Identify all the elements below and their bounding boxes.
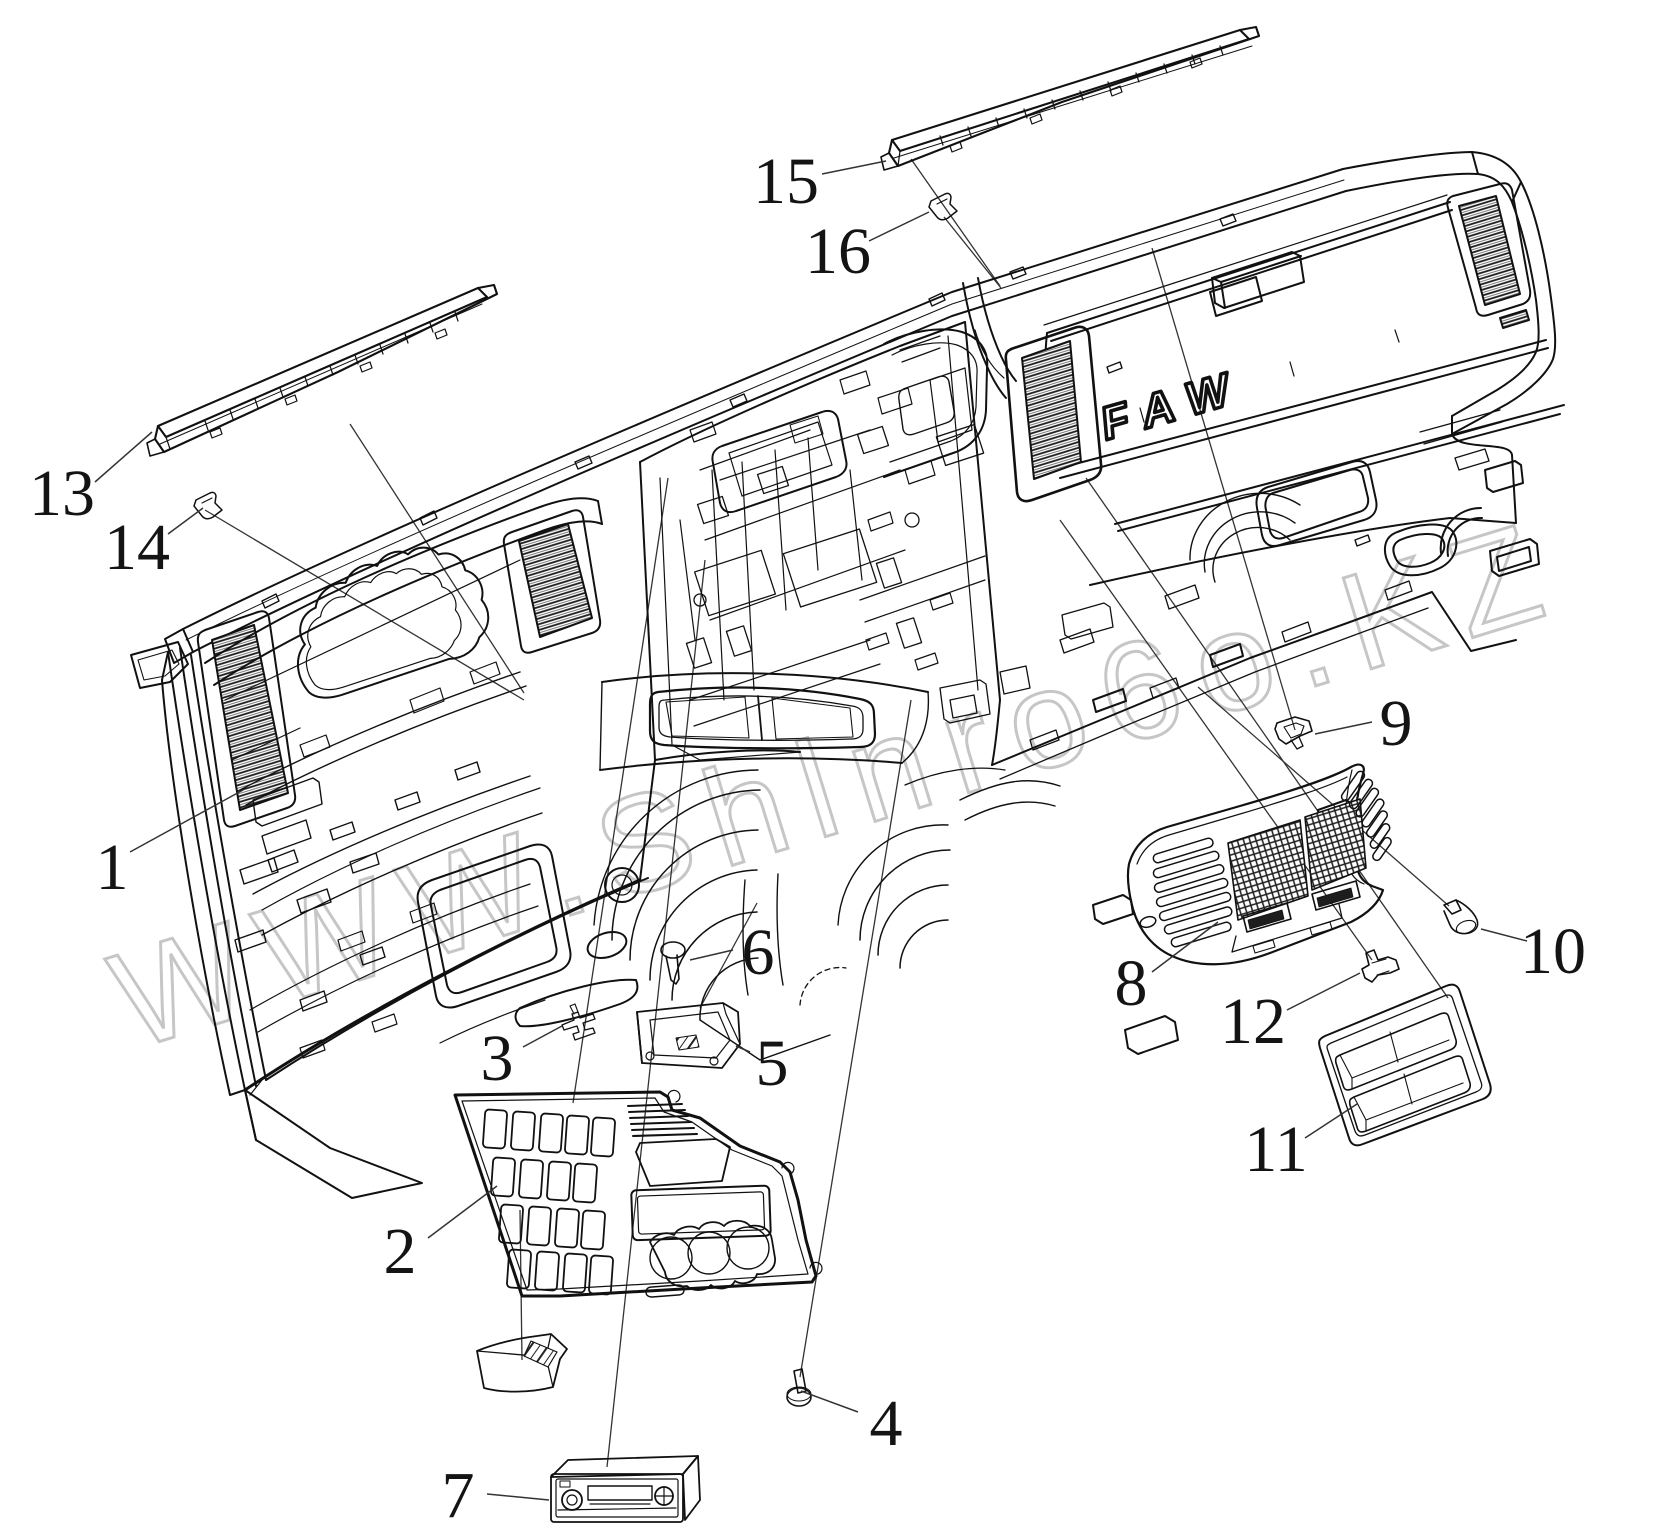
svg-text:13: 13 — [29, 457, 95, 530]
svg-text:16: 16 — [805, 215, 871, 288]
svg-text:1: 1 — [96, 831, 129, 904]
svg-text:6: 6 — [742, 916, 775, 989]
svg-text:11: 11 — [1244, 1113, 1308, 1186]
svg-text:15: 15 — [753, 145, 819, 218]
svg-text:14: 14 — [104, 511, 170, 584]
svg-text:12: 12 — [1220, 985, 1286, 1058]
svg-text:2: 2 — [384, 1215, 417, 1288]
svg-text:7: 7 — [442, 1459, 475, 1532]
svg-text:5: 5 — [756, 1027, 789, 1100]
svg-text:9: 9 — [1380, 687, 1413, 760]
svg-text:8: 8 — [1115, 947, 1148, 1020]
svg-text:3: 3 — [481, 1022, 514, 1095]
svg-text:4: 4 — [870, 1387, 903, 1460]
svg-text:10: 10 — [1520, 915, 1586, 988]
